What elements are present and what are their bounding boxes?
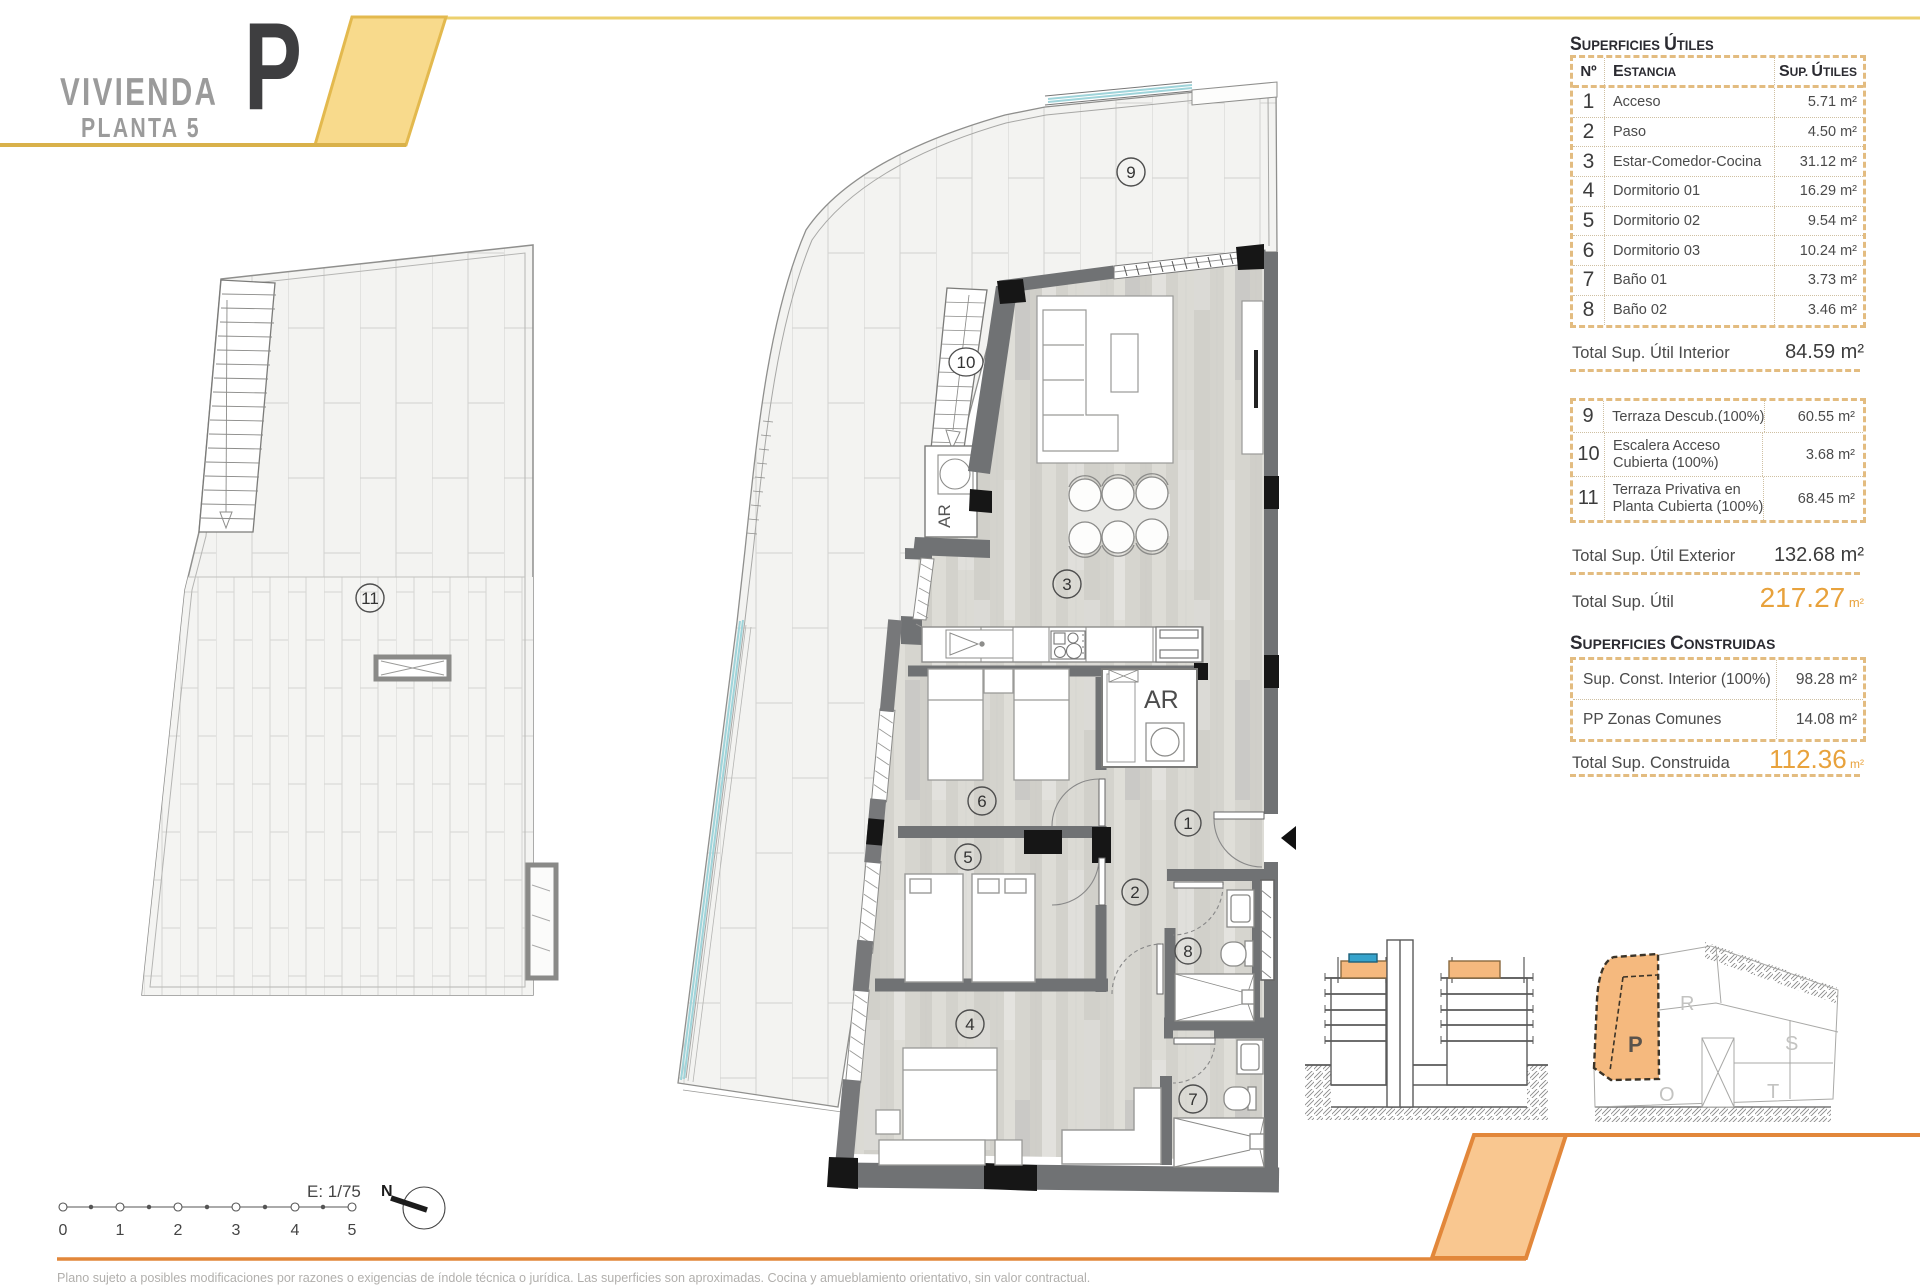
svg-text:S: S — [1785, 1033, 1798, 1055]
svg-text:2: 2 — [1130, 883, 1139, 902]
svg-text:7: 7 — [1188, 1090, 1197, 1109]
svg-text:1: 1 — [116, 1222, 125, 1239]
svg-text:10: 10 — [957, 353, 976, 372]
svg-text:9: 9 — [1126, 163, 1135, 182]
svg-text:0: 0 — [59, 1222, 68, 1239]
svg-text:2: 2 — [174, 1222, 183, 1239]
svg-text:3: 3 — [232, 1222, 241, 1239]
svg-text:R: R — [1680, 993, 1694, 1015]
svg-text:N: N — [381, 1183, 393, 1200]
svg-text:6: 6 — [977, 792, 986, 811]
svg-text:5: 5 — [963, 848, 972, 867]
svg-text:E: 1/75: E: 1/75 — [307, 1182, 361, 1201]
svg-text:3: 3 — [1062, 575, 1071, 594]
svg-text:5: 5 — [348, 1222, 357, 1239]
svg-text:T: T — [1767, 1081, 1779, 1103]
svg-text:11: 11 — [361, 589, 379, 608]
svg-text:AR: AR — [935, 504, 954, 528]
svg-text:4: 4 — [291, 1222, 300, 1239]
svg-text:O: O — [1659, 1084, 1675, 1106]
svg-text:AR: AR — [1144, 686, 1179, 714]
svg-text:1: 1 — [1183, 814, 1192, 833]
svg-text:8: 8 — [1183, 942, 1192, 961]
svg-text:4: 4 — [965, 1015, 974, 1034]
svg-text:P: P — [1628, 1032, 1643, 1057]
